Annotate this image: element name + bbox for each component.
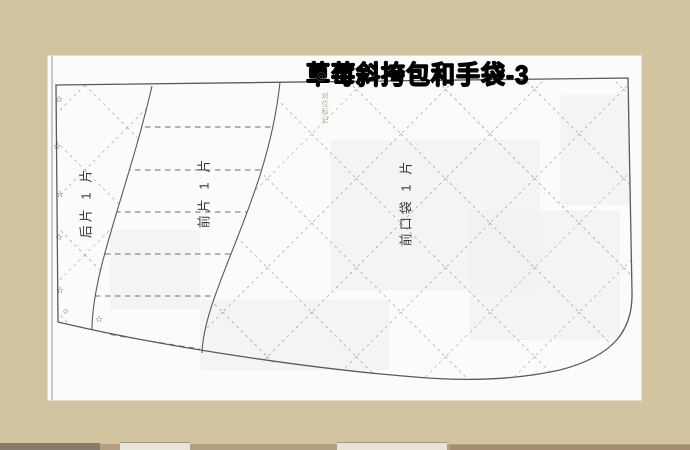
quilting-back-piece [56,85,152,330]
drawing-title: 草莓斜挎包和手袋-3 [306,54,596,86]
quilting-front-pocket [202,78,632,379]
star-mark: ☆ [95,315,103,324]
snap-mark: ◎ [316,70,326,82]
taskbar-fragment [337,442,447,450]
label-front-pocket: 前口袋 1 片 [396,143,415,263]
taskbar-fragment [120,442,190,450]
star-mark: ☆ [53,142,61,151]
star-mark: ☆ [55,233,63,242]
star-mark: ☆ [56,286,64,295]
bottom-band-right [450,445,690,450]
star-mark: ☆ [56,190,64,199]
bottom-band-left [0,443,100,450]
star-mark: ☆ [55,95,63,104]
label-front-piece: 前片 1 片 [194,145,213,241]
label-back-piece: 后片 1 片 [76,153,95,253]
watermark-text: 对位标记 [319,92,329,136]
desktop-background: 草莓斜挎包和手袋-3 后片 1 片 前片 1 片 前口袋 1 片 ☆ ☆ ☆ ☆… [0,0,690,450]
circle-mark: ○ [63,307,68,316]
